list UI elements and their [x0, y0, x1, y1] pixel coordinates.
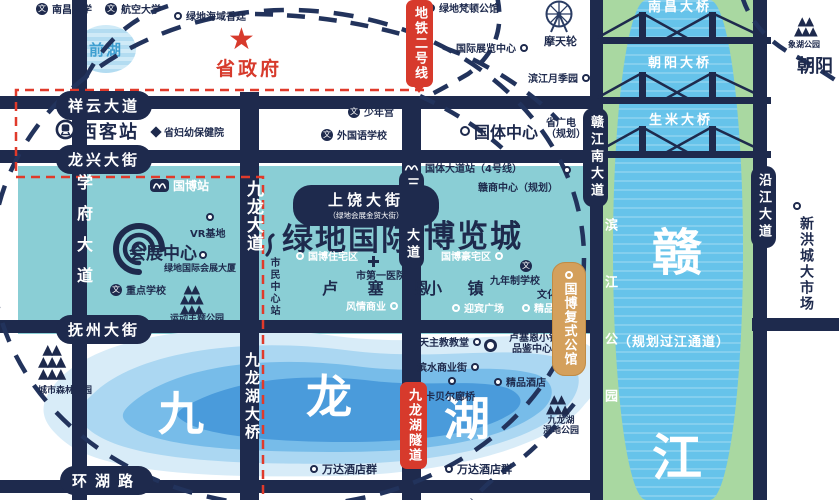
gov-star-icon: ★	[228, 22, 255, 57]
vr-base-label: VR基地	[190, 225, 225, 240]
poi-aviation-university: 文 航空大学	[105, 1, 161, 16]
mountain-row: ▲▲▲	[546, 404, 568, 414]
maternity-hospital-label: 省妇幼保健院	[164, 124, 224, 139]
ganshang-marker-icon	[563, 166, 571, 174]
west-station-label: 西客站	[79, 118, 139, 144]
poi-foreign-language-school: 文 外国语学校	[321, 127, 387, 142]
vr-base-marker-icon	[206, 213, 214, 221]
poi-greenland-fandun: 绿地梵顿公馆	[427, 0, 499, 15]
poi-marker-icon	[310, 465, 318, 473]
forest-park-mountains-icon: ▲▲ ▲▲▲ ▲▲▲	[38, 344, 64, 380]
lake-char-jiu: 九	[158, 378, 204, 444]
catholic-church-label: 天主教教堂	[419, 334, 469, 349]
poi-city-first-hospital: 市第一医院	[356, 267, 406, 282]
guobo-residential-label: 国博住宅区	[308, 248, 358, 263]
poi-marker-icon	[582, 74, 590, 82]
poi-nine-year-school: 九年制学校	[490, 272, 540, 287]
poi-marker-icon	[520, 44, 528, 52]
poi-marker-icon	[452, 304, 460, 312]
metro-line2-banner: 地铁二号线	[406, 0, 433, 87]
intl-exhibition-center-label: 国际展览中心	[456, 40, 516, 55]
aviation-university-label: 航空大学	[121, 1, 161, 16]
poi-yingbin-plaza: 迎宾广场	[452, 300, 504, 315]
ganjiangnan-avenue-pill: 赣江南大道	[583, 108, 608, 207]
yingbin-plaza-label: 迎宾广场	[464, 300, 504, 315]
lucerne-town-right: 小 镇	[426, 275, 494, 299]
wanda-hotels-1-label: 万达酒店群	[322, 461, 377, 477]
poi-marker-icon	[390, 302, 398, 310]
ferris-wheel-icon	[541, 0, 577, 33]
poi-vr-base: VR基地	[190, 225, 225, 240]
binshui-street-label: 滨水商业街	[417, 359, 467, 374]
city-forest-park-label: 城市森林公园	[38, 383, 92, 396]
longxing-street-pill: 龙兴大街	[56, 145, 152, 174]
provincial-tv-label: 省广电 （规划）	[546, 118, 586, 140]
wanda-hotels-2-label: 万达酒店群	[457, 461, 512, 477]
poi-greenland-conv-tower: 绿地国际会展大厦	[164, 261, 236, 274]
hospital-cross-icon	[368, 256, 379, 267]
poi-marker-icon	[495, 252, 503, 260]
poi-marker-icon	[565, 271, 573, 279]
guobo-luxury-label: 国博豪宅区	[441, 248, 491, 263]
mountain-row: ▲▲▲	[38, 368, 64, 380]
ganshang-center-label: 赣商中心（规划）	[478, 179, 558, 194]
kabeier-bridge-label: 卡贝尔廊桥	[425, 388, 475, 403]
xinhongcheng-marker-icon	[793, 202, 801, 210]
jiulonghu-tunnel-pill: 九龙湖隧道	[400, 382, 427, 469]
poi-guobo-station: 国博站	[150, 177, 209, 194]
poi-marker-icon	[494, 378, 502, 386]
fuzhou-street-pill: 抚州大街	[56, 315, 152, 344]
poi-city-forest-park: 城市森林公园	[38, 383, 92, 396]
poi-marker-icon	[522, 304, 530, 312]
hospital-diamond-icon	[150, 126, 161, 137]
school-icon: 文	[520, 260, 532, 272]
guoti-center-label: 国体中心	[474, 119, 538, 143]
civic-center-station-label: 市民中心站	[266, 257, 281, 317]
provincial-tv-line1: 省广电	[546, 118, 586, 129]
chaoyang-district-title: 朝阳	[797, 52, 833, 78]
poi-binshui-street: 滨水商业街	[417, 359, 479, 374]
youth-palace-label: 少年宫	[364, 104, 394, 119]
poi-catholic-church: 天主教教堂	[419, 334, 481, 349]
foreign-language-school-label: 外国语学校	[337, 127, 387, 142]
lucerne-tasting-marker-icon	[484, 339, 497, 352]
guobo-duplex-banner: 国博复式公馆	[552, 262, 586, 376]
poi-ferris-wheel: 摩天轮	[544, 33, 577, 49]
poi-wanda-hotels-1: 万达酒店群	[310, 461, 377, 477]
huanhu-road-pill: 环湖路	[60, 466, 153, 495]
sports-theme-park-label: 运动主题公园	[170, 311, 224, 324]
nanchang-university-label: 南昌大学	[52, 1, 92, 16]
poi-marker-icon	[445, 465, 453, 473]
lake-char-long: 龙	[306, 361, 352, 427]
provincial-government-label: 省政府	[216, 54, 282, 81]
poi-intl-exhibition-center: 国际展览中心	[456, 40, 528, 55]
key-school-label: 重点学校	[126, 282, 166, 297]
sports-park-mountains-icon: ▲▲ ▲▲▲ ▲▲▲	[180, 284, 202, 314]
chaoyang-bridge	[591, 70, 771, 106]
poi-nanchang-university: 文 南昌大学	[36, 1, 92, 16]
provincial-tv-line2: （规划）	[546, 129, 586, 140]
greenland-conv-tower-label: 绿地国际会展大厦	[164, 261, 236, 274]
poi-boutique-hotel-2: 精品酒店	[494, 374, 546, 389]
guobo-duplex-label: 国博复式公馆	[560, 282, 579, 366]
poi-xianghu-park: 象湖公园	[788, 39, 820, 50]
shengmi-bridge	[591, 124, 771, 160]
metro-line2-banner-pointer	[412, 84, 426, 93]
school-icon: 文	[321, 129, 333, 141]
poi-guobo-residential: 国博住宅区	[296, 248, 358, 263]
yanjiang-avenue-pill: 沿江大道	[751, 166, 776, 248]
boutique-hotel-2-label: 精品酒店	[506, 374, 546, 389]
poi-sports-theme-park: 运动主题公园	[170, 311, 224, 324]
expo-city-location-map: 前湖 南昌大桥 朝阳大桥 生米大桥 赣 江 九 龙	[0, 0, 839, 500]
school-icon: 文	[105, 3, 117, 15]
jiulonghu-bridge-label: 九龙湖大桥	[242, 352, 263, 442]
qianhu-label: 前湖	[89, 39, 123, 60]
shangrao-street-sublabel: （绿地会展金贸大街）	[293, 210, 439, 221]
poi-guoti-center: 国体中心	[460, 119, 538, 143]
shangrao-street-label: 上饶大街	[293, 189, 439, 210]
railway-station-icon	[55, 119, 76, 140]
poi-key-school: 文 重点学校	[110, 282, 166, 297]
poi-fengqing-commerce: 风情商业	[346, 298, 398, 313]
nine-year-school-label: 九年制学校	[490, 272, 540, 287]
metro-icon	[150, 179, 169, 192]
xianghu-park-label: 象湖公园	[788, 39, 820, 50]
poi-wanda-hotels-2: 万达酒店群	[445, 461, 512, 477]
planned-crossing-label: （规划过江通道）	[618, 331, 730, 350]
poi-marker-icon	[471, 363, 479, 371]
poi-guobo-luxury: 国博豪宅区	[441, 248, 503, 263]
poi-marker-icon	[460, 126, 470, 136]
ferris-wheel-label: 摩天轮	[544, 33, 577, 49]
poi-marker-icon	[296, 252, 304, 260]
greenland-fandun-label: 绿地梵顿公馆	[439, 0, 499, 15]
poi-kabeier-bridge: 卡贝尔廊桥	[425, 388, 475, 403]
poi-youth-palace: 文 少年宫	[348, 104, 394, 119]
poi-maternity-hospital: 省妇幼保健院	[152, 124, 224, 139]
nanchang-bridge	[591, 10, 771, 46]
kabeier-marker-icon	[448, 377, 456, 385]
xinhongcheng-market-label: 新洪城大市场	[796, 216, 816, 312]
city-first-hospital-label: 市第一医院	[356, 267, 406, 282]
fengqing-commerce-label: 风情商业	[346, 298, 386, 313]
xiangyun-avenue-pill: 祥云大道	[56, 91, 152, 120]
chaoyang-bridge-label: 朝阳大桥	[648, 52, 712, 71]
nanchang-bridge-label: 南昌大桥	[648, 0, 712, 15]
binjiang-rose-garden-label: 滨江月季园	[528, 70, 578, 85]
xuefu-avenue-label: 学府大道	[71, 174, 95, 298]
school-icon: 文	[36, 3, 48, 15]
poi-marker-icon	[473, 338, 481, 346]
poi-marker-icon	[174, 12, 182, 20]
conv-tower-marker-icon	[199, 251, 207, 259]
guobo-station-label: 国博站	[173, 177, 209, 194]
jiulong-avenue-label: 九龙大道	[241, 180, 266, 252]
greenland-haiyu-label: 绿地海域香廷	[186, 8, 246, 23]
shengmi-bridge-label: 生米大桥	[649, 109, 713, 128]
mountain-row: ▲▲▲	[794, 26, 816, 36]
school-icon: 文	[110, 284, 122, 296]
poi-greenland-haiyu: 绿地海域香廷	[174, 8, 246, 23]
school-icon: 文	[348, 106, 360, 118]
shangrao-street-pill: 上饶大街 （绿地会展金贸大街）	[293, 185, 439, 226]
wetland-mountains-icon: ▲▲ ▲▲▲	[546, 394, 568, 414]
wetland-line1: 九龙湖	[543, 416, 579, 426]
jiulonghu-wetland-label: 九龙湖 湿地公园	[543, 416, 579, 436]
guoti-avenue-station-label: 国体大道站（4号线）	[425, 160, 522, 175]
poi-ganshang-center: 赣商中心（规划）	[478, 179, 558, 194]
gan-river-char1: 赣	[652, 213, 702, 285]
gan-river-char2: 江	[652, 418, 702, 490]
xianghu-mountains-icon: ▲▲ ▲▲▲	[794, 16, 816, 36]
binjiang-park-label: 滨江公园	[600, 218, 619, 446]
poi-binjiang-rose-garden: 滨江月季园	[528, 70, 590, 85]
wetland-line2: 湿地公园	[543, 426, 579, 436]
